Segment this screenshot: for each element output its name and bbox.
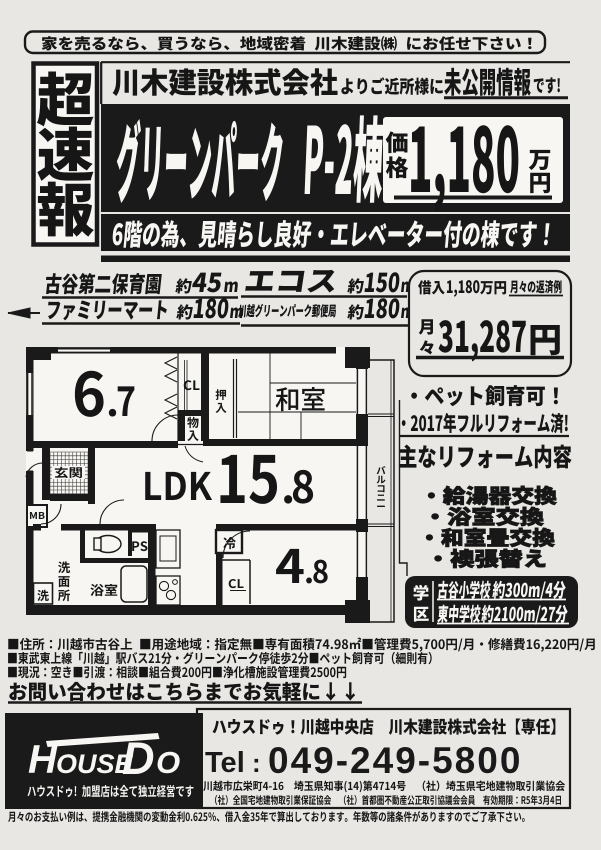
svg-text:O: O <box>156 745 180 780</box>
svg-text:Tel :: Tel : <box>205 747 261 779</box>
svg-text:049-249-5800: 049-249-5800 <box>268 740 522 781</box>
